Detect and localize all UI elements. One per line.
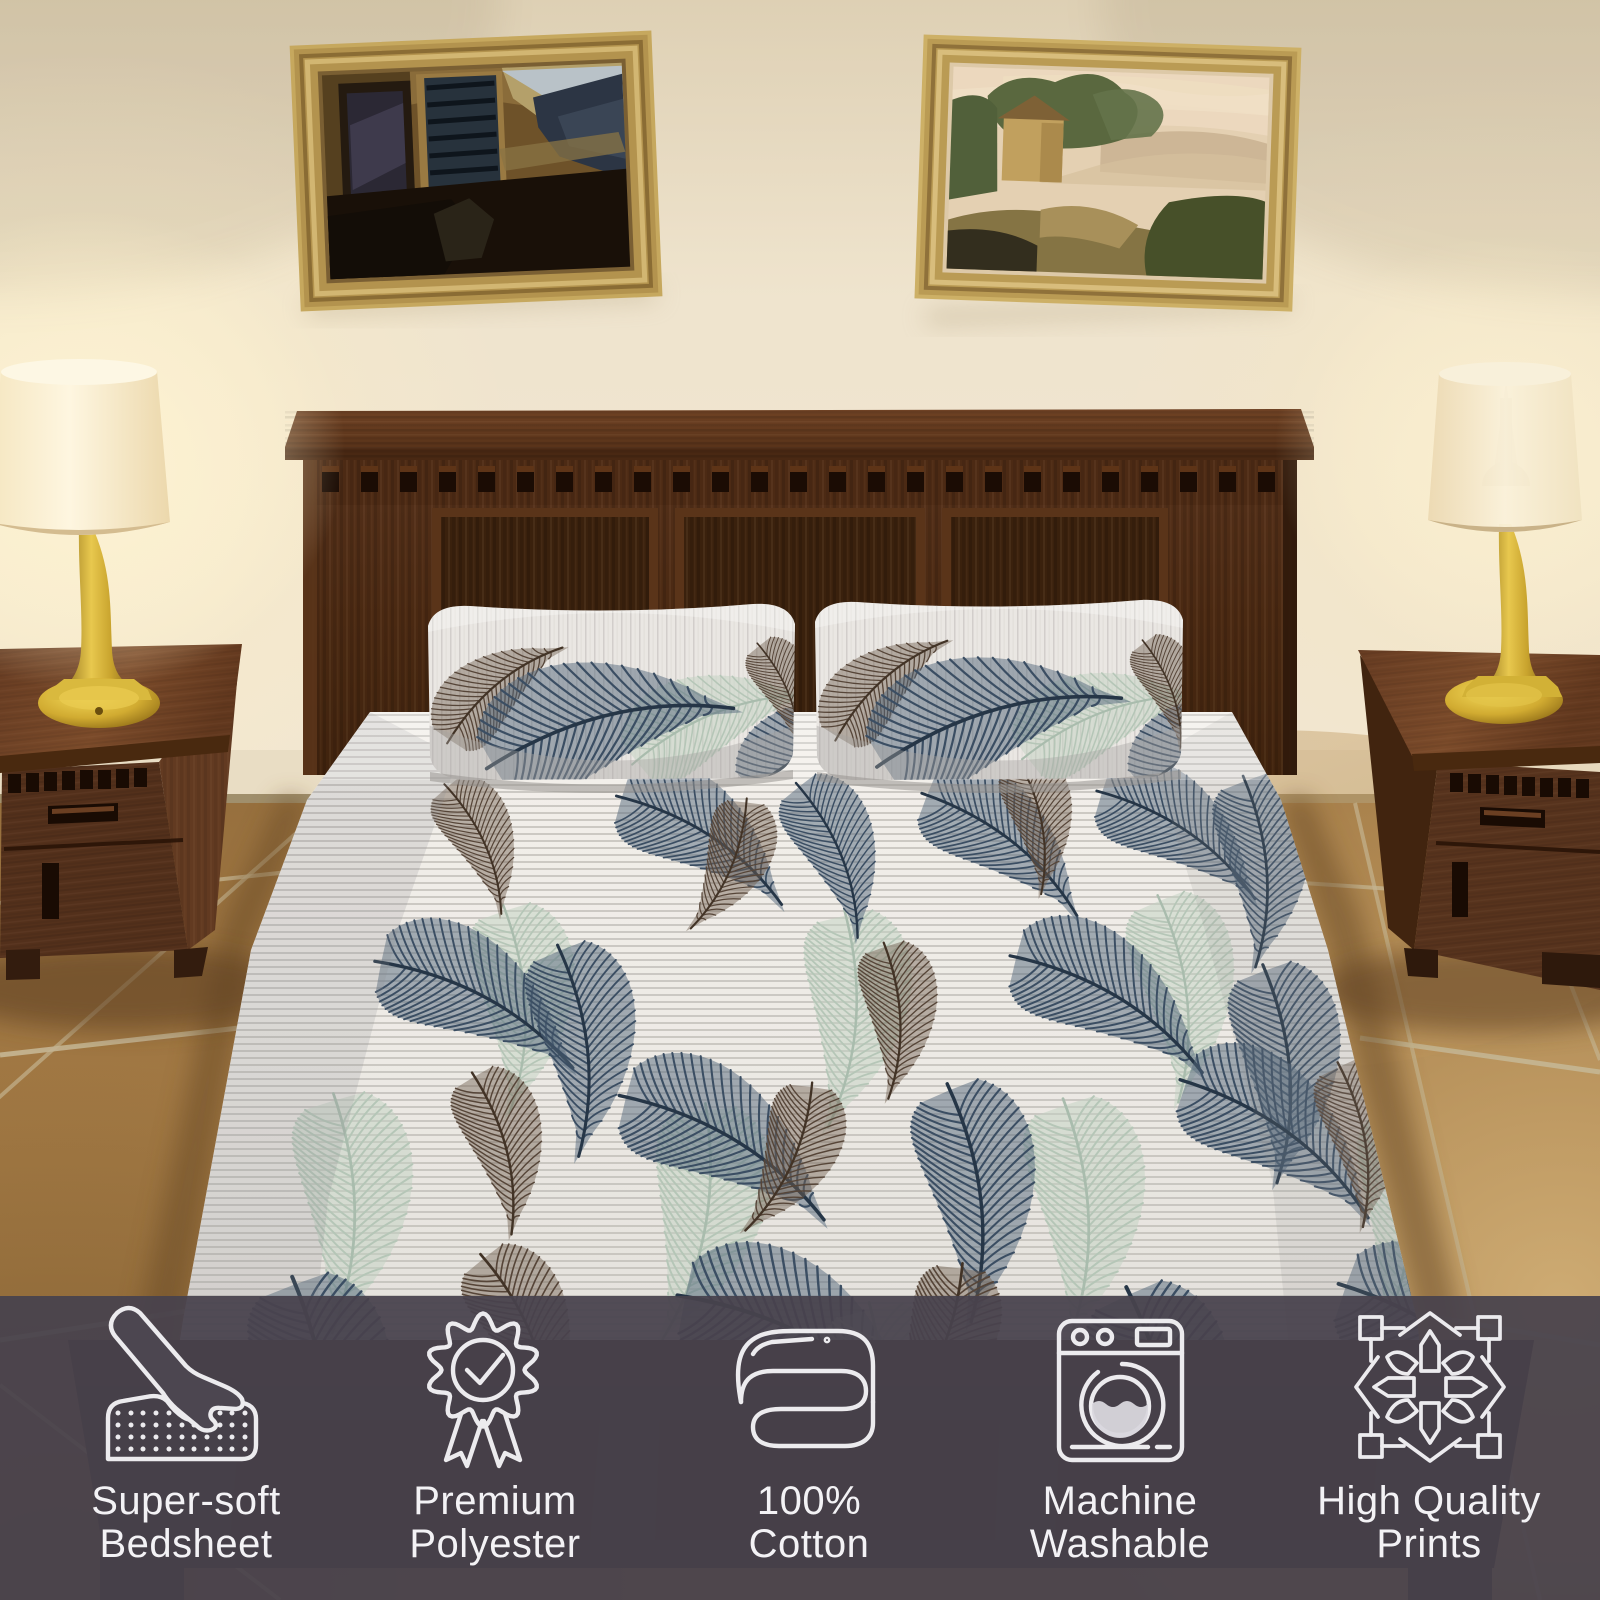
svg-text:Machine: Machine [1043, 1479, 1198, 1523]
svg-text:Polyester: Polyester [409, 1522, 580, 1566]
svg-text:Premium: Premium [413, 1479, 577, 1523]
svg-text:Prints: Prints [1376, 1522, 1481, 1566]
svg-text:Bedsheet: Bedsheet [99, 1522, 272, 1566]
svg-text:Cotton: Cotton [749, 1522, 870, 1566]
svg-text:Super-soft: Super-soft [91, 1479, 281, 1523]
svg-text:Washable: Washable [1030, 1522, 1210, 1566]
svg-text:100%: 100% [757, 1479, 861, 1523]
svg-text:High Quality: High Quality [1317, 1479, 1541, 1523]
